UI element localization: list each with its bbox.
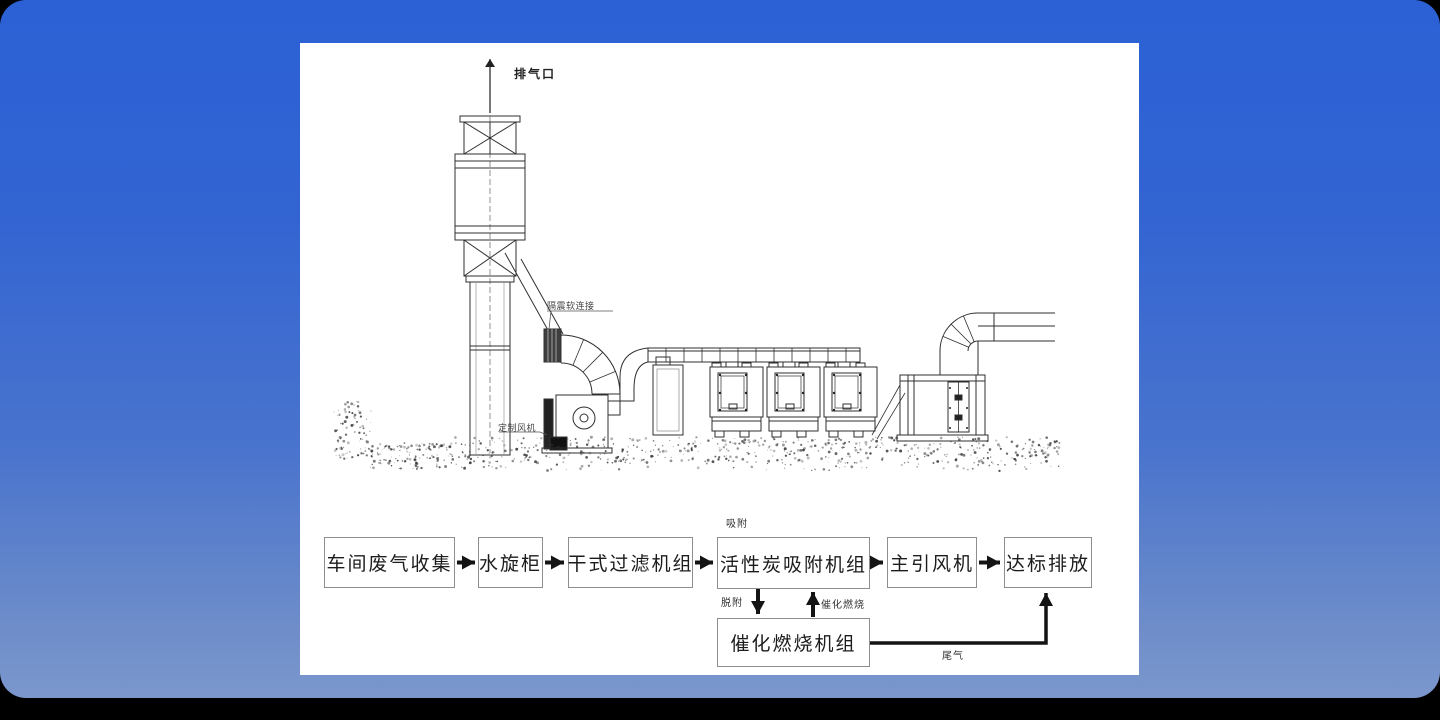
catalytic-combustion-label: 催化燃烧	[821, 596, 865, 611]
carbon-module	[710, 363, 763, 437]
flex-connector-label: 隔震软连接	[547, 299, 595, 312]
diagram-panel: 排气口 隔震软连接 定制风机 车间废气收集 水旋柜 干式过滤机组 活性炭吸附机组…	[300, 43, 1139, 675]
ground-speckles	[334, 401, 1061, 472]
stack-group	[455, 59, 525, 455]
flow-box-catalytic-combustion-unit: 催化燃烧机组	[717, 618, 870, 667]
carbon-module	[767, 363, 820, 437]
flow-box-activated-carbon-unit: 活性炭吸附机组	[717, 537, 870, 589]
flow-box-main-draft-fan: 主引风机	[887, 537, 977, 588]
exhaust-outlet-label: 排气口	[514, 65, 556, 82]
tail-gas-label: 尾气	[942, 647, 964, 662]
flow-box-standard-discharge: 达标排放	[1004, 537, 1092, 588]
custom-fan-label: 定制风机	[498, 421, 536, 434]
adsorption-label: 吸附	[726, 515, 748, 530]
flow-box-dry-filter-unit: 干式过滤机组	[568, 537, 693, 588]
right-unit-group	[872, 313, 1055, 441]
desorption-label: 脱附	[721, 594, 743, 609]
slide-background: 排气口 隔震软连接 定制风机 车间废气收集 水旋柜 干式过滤机组 活性炭吸附机组…	[0, 0, 1440, 698]
adsorption-unit-group	[648, 348, 877, 437]
carbon-module	[824, 363, 877, 437]
flow-box-water-spray-cabinet: 水旋柜	[478, 537, 543, 588]
flow-box-workshop-gas-collection: 车间废气收集	[324, 537, 455, 588]
tail-gas-line	[870, 593, 1046, 643]
flex-connector-block	[544, 329, 561, 362]
